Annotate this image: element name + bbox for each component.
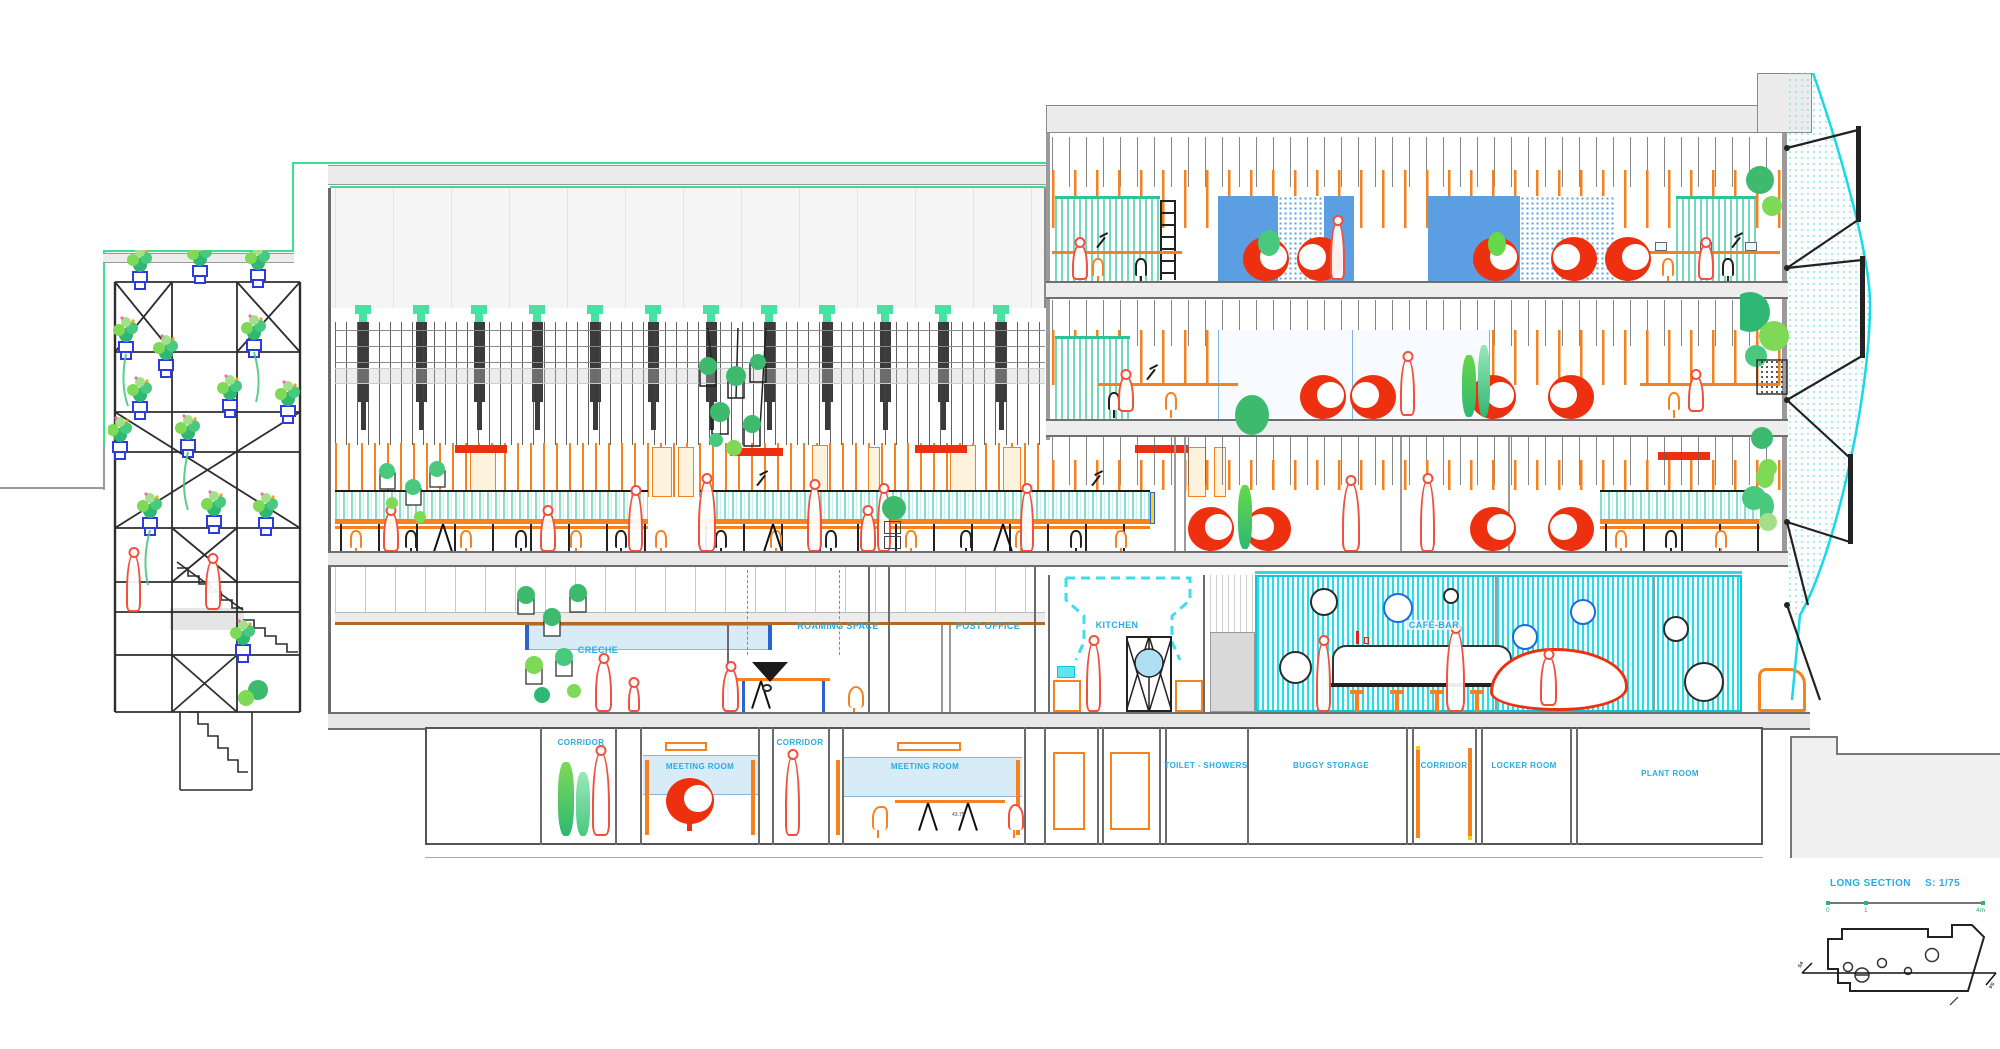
person-seated xyxy=(1698,244,1714,280)
stair-mass xyxy=(1210,632,1255,712)
terrain-fill xyxy=(1790,753,2000,858)
bar-counter xyxy=(1332,645,1512,685)
l1-orange-rods xyxy=(1052,460,1782,490)
chair xyxy=(1665,530,1677,548)
yellow-marker-pole xyxy=(1150,492,1155,524)
plant-bamboo xyxy=(1238,485,1252,549)
roaming-table-leg xyxy=(742,681,745,712)
l1-partition xyxy=(1184,437,1186,551)
cooler-box xyxy=(1057,666,1075,678)
egg-chair xyxy=(1605,237,1651,281)
room-label-corridor-2: CORRIDOR xyxy=(777,738,824,747)
room-label-cafe-bar: CAFÉ-BAR xyxy=(1407,620,1461,630)
stair-wall-stripes xyxy=(1210,575,1255,632)
chair-swivel xyxy=(1008,804,1024,830)
bar-stool-leg xyxy=(1355,694,1359,712)
chair xyxy=(872,806,888,830)
main-floor-slab xyxy=(328,551,1788,567)
l1-partition xyxy=(1174,437,1176,551)
chair xyxy=(905,530,917,548)
scale-tick-label-4m: 4m xyxy=(1976,907,1985,914)
scale-tick-label-1: 1 xyxy=(1864,907,1868,914)
chair xyxy=(515,530,527,548)
trestle-legs xyxy=(760,524,786,552)
chair xyxy=(1668,392,1680,410)
slab-l2 xyxy=(1046,419,1788,437)
bwall xyxy=(828,727,830,845)
cafe-ceiling-line xyxy=(1255,571,1742,574)
scale-bar xyxy=(1828,902,1985,904)
bottle xyxy=(1356,631,1359,644)
roaming-table-leg xyxy=(822,681,825,712)
desk-screen-run xyxy=(1600,490,1760,524)
hall-column-caps xyxy=(335,305,1045,314)
person-seated-sofa xyxy=(1540,656,1557,706)
kitchen-counter xyxy=(1175,680,1203,712)
cafe-porthole xyxy=(1570,599,1596,625)
bwall xyxy=(1406,727,1408,845)
meeting-table-top xyxy=(895,800,1005,803)
egg-chair xyxy=(1350,375,1396,419)
room-label-roaming: ROAMING SPACE xyxy=(797,621,879,631)
left-site-wall xyxy=(103,446,105,490)
suspended-garden xyxy=(688,328,780,478)
terrain-edge xyxy=(1790,736,1836,738)
room-label-meeting-2: MEETING ROOM xyxy=(891,762,959,771)
left-ground-line xyxy=(0,487,105,489)
person-seated xyxy=(1118,376,1134,412)
bwall xyxy=(1247,727,1249,845)
egg-chair xyxy=(1548,507,1594,551)
hall-column-caps-taper xyxy=(335,314,1045,322)
kitchen-left-wall xyxy=(1048,575,1050,712)
bwall xyxy=(1024,727,1026,845)
chair xyxy=(1070,530,1082,548)
bwall xyxy=(1481,727,1483,845)
door-panel xyxy=(1110,752,1150,830)
key-plan xyxy=(1800,915,2000,1025)
chair xyxy=(715,530,727,548)
storage-box xyxy=(884,536,901,549)
monitor xyxy=(1655,242,1667,251)
glass-drink xyxy=(1364,637,1369,644)
room-label-buggy-storage: BUGGY STORAGE xyxy=(1293,761,1369,770)
chair xyxy=(1715,530,1727,548)
plant-tower xyxy=(108,250,308,795)
dashed-dropline xyxy=(839,570,840,655)
person-walking xyxy=(1342,482,1360,552)
sheet-title: LONG SECTION xyxy=(1830,878,1911,889)
cafe-porthole xyxy=(1279,651,1312,684)
bar-stool-leg xyxy=(1435,694,1439,712)
pendant-cone xyxy=(752,662,788,682)
hvac-box xyxy=(897,742,961,751)
chair xyxy=(570,530,582,548)
block-parapet xyxy=(1046,105,1790,133)
room-label-locker-room: LOCKER ROOM xyxy=(1491,761,1556,770)
plant xyxy=(1488,232,1506,256)
l3-desk-left xyxy=(1052,251,1182,254)
person-child-creche xyxy=(628,684,640,712)
kitchen-right-wall xyxy=(1203,575,1205,712)
door-jamb xyxy=(751,760,755,835)
post-columns xyxy=(949,625,951,712)
room-label-post-office: POST OFFICE xyxy=(956,621,1020,631)
bwall xyxy=(1576,727,1578,845)
bwall xyxy=(1044,727,1046,845)
cafe-porthole xyxy=(1684,662,1724,702)
door-jamb xyxy=(645,760,649,835)
bwall xyxy=(540,727,542,845)
door-panel xyxy=(1053,752,1085,830)
chair xyxy=(960,530,972,548)
scale-tick-0 xyxy=(1826,901,1830,905)
door-jamb xyxy=(1468,748,1472,838)
hvac-box xyxy=(665,742,707,751)
person-seated xyxy=(1688,376,1704,412)
bwall xyxy=(1165,727,1167,845)
long-section-drawing: 43.75 xyxy=(0,0,2000,1049)
pendant-bowl xyxy=(762,684,772,692)
envelope-line-top xyxy=(292,162,1048,164)
baffle xyxy=(652,447,672,497)
scale-tick-1 xyxy=(1864,901,1868,905)
hall-column-lines xyxy=(335,188,1045,308)
wall-roaming-post2 xyxy=(888,567,890,712)
plant xyxy=(1258,230,1280,256)
door-jamb xyxy=(836,760,840,835)
trestle-legs xyxy=(915,803,941,831)
room-label-meeting-1: MEETING ROOM xyxy=(666,762,734,771)
desk-screen-run xyxy=(700,490,1150,524)
glass-cap xyxy=(768,625,772,650)
bwall xyxy=(758,727,760,845)
jamb-dot xyxy=(1468,836,1472,840)
slab-l3 xyxy=(1046,281,1788,299)
desk-legs xyxy=(1605,524,1760,551)
l1-partition xyxy=(1400,437,1402,551)
bar-stool-leg xyxy=(1475,694,1479,712)
egg-chair xyxy=(1188,507,1234,551)
dashed-dropline xyxy=(747,570,748,655)
chair xyxy=(1115,530,1127,548)
envelope-line-left-v xyxy=(103,250,105,446)
bar-stool-leg xyxy=(1395,694,1399,712)
chair xyxy=(1615,530,1627,548)
terrain-edge2 xyxy=(1836,753,2000,755)
room-label-toilet-showers: TOILET - SHOWERS xyxy=(1164,761,1247,770)
chair xyxy=(1135,258,1147,276)
person-stairs xyxy=(205,560,221,610)
room-label-kitchen: KITCHEN xyxy=(1096,620,1139,630)
foundation-ledge xyxy=(425,857,1763,858)
egg-chair xyxy=(1470,507,1516,551)
cafe-porthole xyxy=(1443,588,1459,604)
cafe-porthole xyxy=(1663,616,1689,642)
chair xyxy=(1092,258,1104,276)
kitchen-cabinet-braces xyxy=(1126,636,1172,712)
room-label-corridor-1: CORRIDOR xyxy=(558,738,605,747)
plant-bamboo xyxy=(576,772,590,836)
egg-chair xyxy=(1300,375,1346,419)
room-label-corridor-3: CORRIDOR xyxy=(1421,761,1468,770)
kitchen-counter xyxy=(1053,680,1081,712)
bwall xyxy=(640,727,642,845)
light-bar xyxy=(455,445,507,453)
sheet-scale: S: 1/75 xyxy=(1925,878,1960,889)
basement-outline xyxy=(425,727,1763,845)
egg-chair xyxy=(1548,375,1594,419)
bwall xyxy=(1159,727,1161,845)
wall-roaming-post xyxy=(868,567,870,712)
bwall xyxy=(1102,727,1104,845)
cafe-porthole xyxy=(1512,624,1538,650)
wall-post-right xyxy=(1034,567,1036,712)
bwall xyxy=(1475,727,1477,845)
person-seated xyxy=(1072,244,1088,280)
chair-swivel xyxy=(848,686,864,708)
bwall xyxy=(1570,727,1572,845)
trestle-legs xyxy=(990,524,1016,552)
hall-left-wall xyxy=(328,188,331,712)
chair xyxy=(1722,258,1734,276)
jamb-dot xyxy=(1416,746,1420,750)
envelope-line-step-v xyxy=(292,162,294,252)
cafe-mullion xyxy=(1653,575,1655,712)
bar-counter-top xyxy=(1328,683,1516,687)
chair xyxy=(655,530,667,548)
chair xyxy=(460,530,472,548)
person-standing xyxy=(1420,480,1435,552)
plant xyxy=(882,496,906,520)
scale-tick-4m xyxy=(1981,901,1985,905)
egg-chair xyxy=(1551,237,1597,281)
ball-chair xyxy=(666,778,714,824)
plant-bamboo xyxy=(1462,355,1476,417)
room-label-plant-room: PLANT ROOM xyxy=(1641,769,1699,778)
person-seated xyxy=(722,668,739,712)
hanging-planters xyxy=(372,455,452,555)
bwall xyxy=(615,727,617,845)
scale-tick-label-0: 0 xyxy=(1826,907,1830,914)
right-facade xyxy=(1740,60,2000,770)
plant xyxy=(1235,395,1269,435)
chair xyxy=(1662,258,1674,276)
table-dimension-note: 43.75 xyxy=(952,812,965,818)
plant-bamboo xyxy=(1478,345,1490,417)
l3-ladder xyxy=(1160,200,1176,280)
door-jamb xyxy=(1416,748,1420,838)
person-seated xyxy=(540,512,556,552)
room-label-creche: CRECHE xyxy=(578,645,618,655)
person-seated xyxy=(860,512,876,552)
chair xyxy=(825,530,837,548)
chair xyxy=(1165,392,1177,410)
bwall xyxy=(1097,727,1099,845)
egg-chair xyxy=(1470,375,1516,419)
ceiling-hangers xyxy=(335,567,1045,615)
cafe-porthole xyxy=(1310,588,1338,616)
terrain-edge-left xyxy=(1790,736,1792,858)
terrain-fill-step xyxy=(1790,736,1836,756)
bwall xyxy=(1412,727,1414,845)
hall-parapet xyxy=(328,165,1046,185)
bwall xyxy=(772,727,774,845)
storage-box xyxy=(884,521,901,534)
plant-bamboo xyxy=(558,762,574,836)
cafe-porthole xyxy=(1383,593,1413,623)
chair xyxy=(615,530,627,548)
terrain-edge-v xyxy=(1836,736,1838,754)
light-bar xyxy=(915,445,967,453)
post-columns xyxy=(941,625,943,712)
chair xyxy=(350,530,362,548)
